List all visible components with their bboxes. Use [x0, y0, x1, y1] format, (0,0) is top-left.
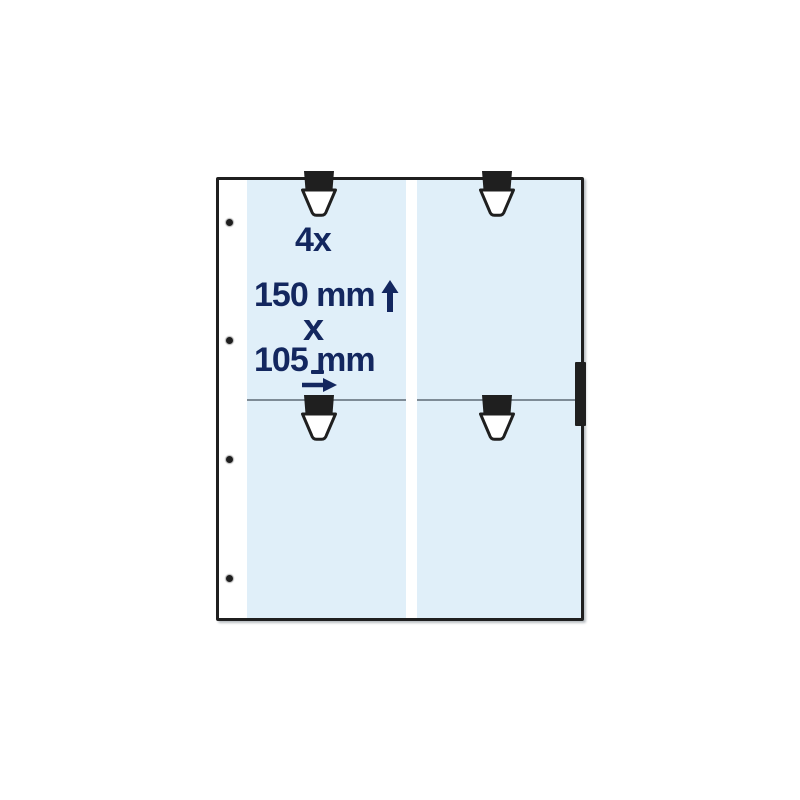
binder-hole-icon — [226, 219, 233, 226]
height-dimension-line: 150 mm — [254, 278, 399, 312]
edge-index-mark — [575, 362, 586, 426]
pocket-tab-icon — [301, 171, 337, 217]
underscore-mark — [311, 370, 324, 374]
right-arrow-icon — [302, 378, 337, 392]
pocket-tab-icon — [301, 395, 337, 441]
binder-hole-icon — [226, 575, 233, 582]
pocket-tab-icon — [479, 395, 515, 441]
binder-hole-icon — [226, 337, 233, 344]
album-refill-sheet: 4x 150 mm x 105 mm — [216, 177, 584, 621]
up-arrow-icon — [381, 280, 399, 312]
pocket-tab-icon — [479, 171, 515, 217]
binder-hole-icon — [226, 456, 233, 463]
product-image: 4x 150 mm x 105 mm — [0, 0, 800, 800]
binder-strip — [219, 180, 248, 618]
quantity-label: 4x — [295, 223, 331, 257]
